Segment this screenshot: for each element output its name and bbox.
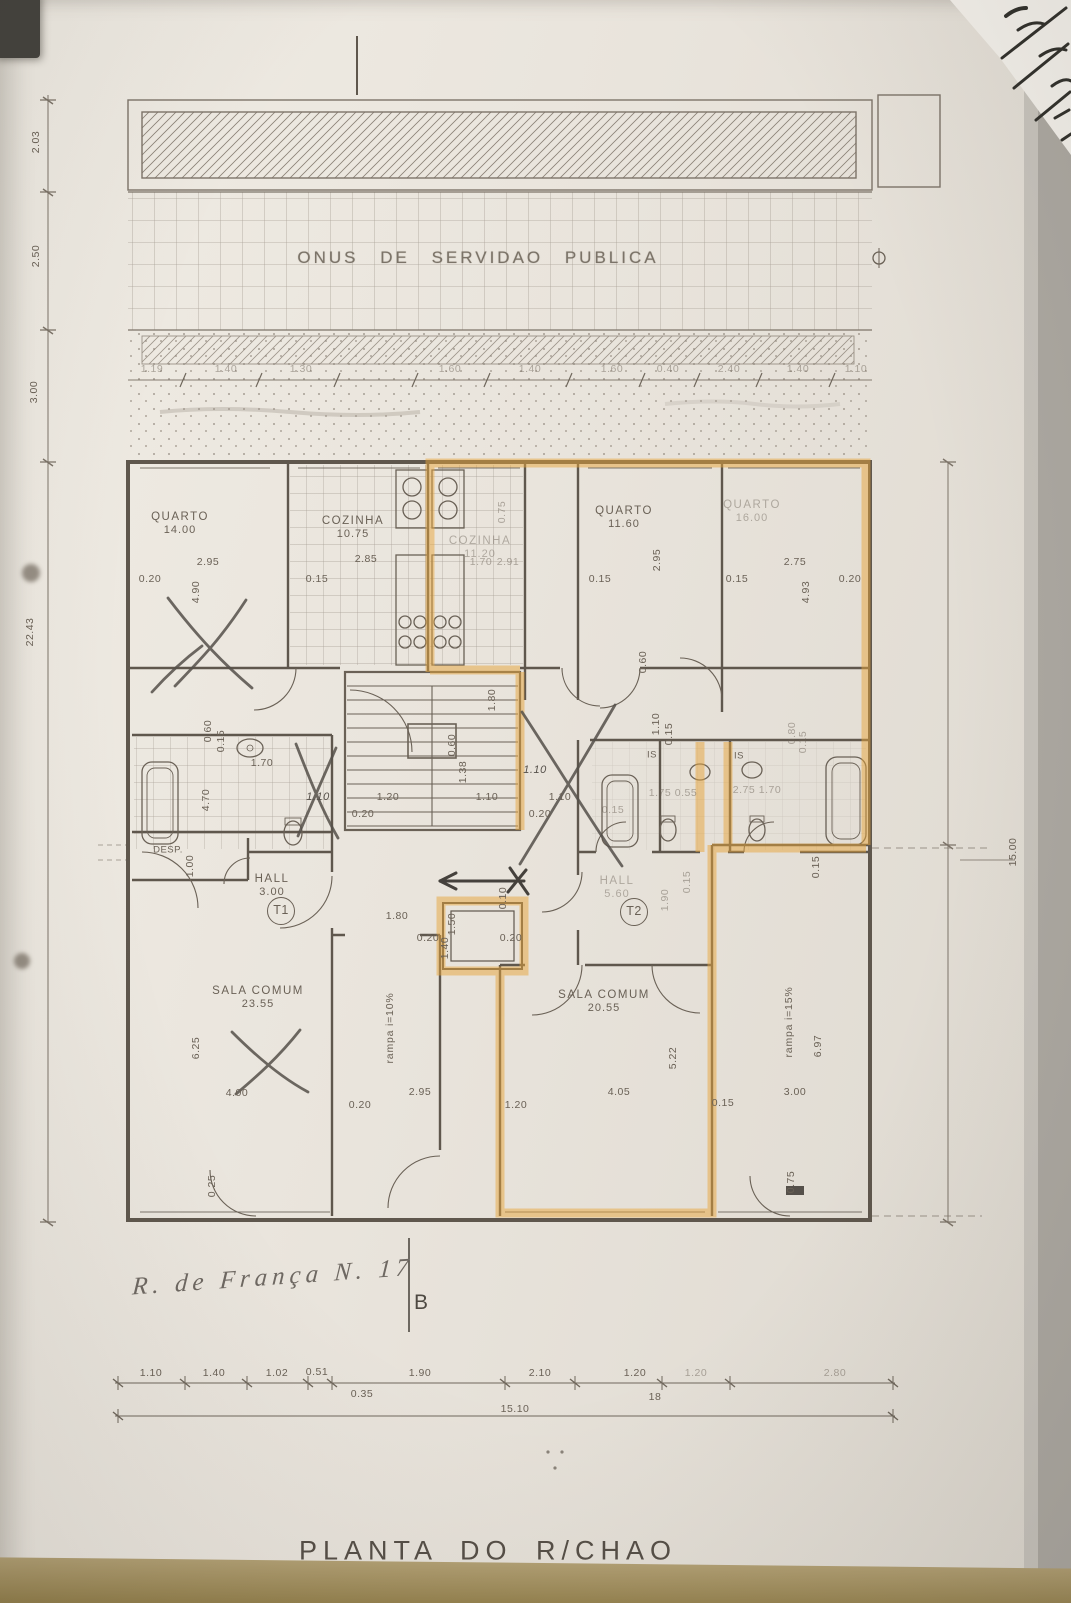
dimension-label: 0.15 [663, 723, 675, 745]
room-name: COZINHA [322, 515, 384, 528]
section-letter-b: B [414, 1291, 428, 1315]
room-name: QUARTO [723, 499, 781, 512]
room-label: HALL3.00 [255, 873, 290, 899]
dimension-label: 15.00 [1007, 838, 1019, 867]
dimension-label: 1.10 [476, 791, 498, 803]
dimension-label: 0.20 [139, 573, 161, 585]
dimension-label: 1.20 [505, 1099, 527, 1111]
dimension-label: 1.40 [787, 363, 809, 375]
dimension-label: 1.75 [649, 787, 671, 799]
dimension-label: 0.15 [797, 731, 809, 753]
dimension-label: 0.15 [602, 804, 624, 816]
room-label: COZINHA10.75 [322, 515, 384, 541]
dimension-label: 2.75 [733, 784, 755, 796]
room-name: IS [647, 751, 657, 762]
dimension-label: 2.95 [197, 556, 219, 568]
dimension-label: 0.75 [496, 501, 508, 523]
room-name: QUARTO [151, 511, 209, 524]
dimension-label: 0.20 [500, 932, 522, 944]
ramp-label: rampa i=10% [384, 993, 396, 1064]
room-name: DESP. [153, 846, 183, 857]
dimension-label: 0.60 [202, 720, 214, 742]
dimension-label: 1.80 [486, 689, 498, 711]
room-label: SALA COMUM20.55 [558, 989, 650, 1015]
paper-spot [22, 564, 40, 582]
dimension-label: 0.10 [497, 887, 509, 909]
dimension-label: 0.75 [785, 1171, 797, 1193]
unit-tag-t2: T2 [620, 898, 648, 926]
dimension-label: 0.40 [657, 363, 679, 375]
dimension-label: 0.15 [215, 730, 227, 752]
dimension-label: 4.00 [226, 1087, 248, 1099]
dimension-label: 2.85 [355, 553, 377, 565]
dimension-label: 0.55 [675, 787, 697, 799]
dimension-label: 6.97 [812, 1035, 824, 1057]
dimension-label: 0.15 [589, 573, 611, 585]
dimension-label: 18 [649, 1391, 662, 1403]
dimension-label: 2.75 [784, 556, 806, 568]
dimension-label: 0.15 [810, 856, 822, 878]
dimension-label: 3.00 [784, 1086, 806, 1098]
room-name: HALL [600, 875, 635, 888]
room-area: 11.60 [595, 518, 653, 531]
servitude-band-title: ONUS DE SERVIDAO PUBLICA [297, 248, 658, 268]
dimension-label: 1.40 [215, 363, 237, 375]
room-label: SALA COMUM23.55 [212, 985, 304, 1011]
photo-dark-corner [0, 0, 40, 58]
dimension-label: 2.50 [30, 245, 42, 267]
dimension-label: 1.10 [650, 713, 662, 735]
dimension-label: 0.15 [726, 573, 748, 585]
dimension-label: 1.60 [601, 363, 623, 375]
room-name: COZINHA [449, 535, 511, 548]
room-name: SALA COMUM [558, 989, 650, 1002]
dimension-label: 1.40 [439, 937, 451, 959]
dimension-label: 4.90 [190, 581, 202, 603]
dimension-label: 2.03 [30, 131, 42, 153]
room-label: QUARTO14.00 [151, 511, 209, 537]
dimension-label: 4.05 [608, 1086, 630, 1098]
room-label: HALL5.60 [600, 875, 635, 901]
dimension-label: 0.60 [637, 651, 649, 673]
dimension-label: 15.10 [501, 1403, 530, 1415]
dimension-label: 0.25 [206, 1175, 218, 1197]
dimension-label: 1.10 [845, 363, 867, 375]
room-name: QUARTO [595, 505, 653, 518]
room-area: 23.55 [212, 998, 304, 1011]
dimension-label: 0.60 [446, 734, 458, 756]
dimension-label: 2.95 [409, 1086, 431, 1098]
dimension-label: 1.00 [184, 855, 196, 877]
dimension-label: 1.10 [306, 791, 329, 803]
room-name: SALA COMUM [212, 985, 304, 998]
ramp-label: rampa i=15% [783, 987, 795, 1058]
dimension-label: 0.20 [349, 1099, 371, 1111]
dimension-label: 1.02 [266, 1367, 288, 1379]
room-label: IS [647, 751, 657, 762]
dimension-label: 0.20 [417, 932, 439, 944]
dimension-label: 4.70 [200, 789, 212, 811]
dimension-label: 1.10 [523, 764, 546, 776]
dimension-label: 4.93 [800, 581, 812, 603]
dimension-label: 2.95 [651, 549, 663, 571]
dimension-label: 1.20 [624, 1367, 646, 1379]
room-label: QUARTO16.00 [723, 499, 781, 525]
dimension-label: 1.60 [439, 363, 461, 375]
dimension-label: 0.15 [306, 573, 328, 585]
dimension-label: 1.38 [457, 761, 469, 783]
dimension-label: 1.90 [409, 1367, 431, 1379]
dimension-label: 0.15 [681, 871, 693, 893]
room-name: HALL [255, 873, 290, 886]
dimension-label: 3.00 [28, 381, 40, 403]
unit-tag-t1: T1 [267, 897, 295, 925]
dimension-label: 1.70 [251, 757, 273, 769]
dimension-label: 0.20 [529, 808, 551, 820]
paper-spot [14, 953, 30, 969]
room-label: DESP. [153, 846, 183, 857]
room-name: IS [734, 752, 744, 763]
photographed-floor-plan: ONUS DE SERVIDAO PUBLICA R. de França N.… [0, 0, 1071, 1603]
dimension-label: 1.50 [446, 913, 458, 935]
dimension-label: 0.51 [306, 1366, 328, 1378]
dimension-label: 1.40 [519, 363, 541, 375]
dimension-label: 0.20 [352, 808, 374, 820]
dimension-label: 1.19 [141, 363, 163, 375]
dimension-label: 2.10 [529, 1367, 551, 1379]
dimension-label: 1.70 [759, 784, 781, 796]
dimension-label: 1.10 [140, 1367, 162, 1379]
dimension-label: 0.15 [712, 1097, 734, 1109]
room-label: QUARTO11.60 [595, 505, 653, 531]
dimension-label: 1.20 [377, 791, 399, 803]
dimension-label: 5.22 [667, 1047, 679, 1069]
room-area: 11.20 [449, 548, 511, 561]
dimension-label: 6.25 [190, 1037, 202, 1059]
handwritten-address: R. de França N. 17 [131, 1250, 462, 1301]
room-area: 20.55 [558, 1002, 650, 1015]
plan-labels-layer: ONUS DE SERVIDAO PUBLICA R. de França N.… [0, 0, 1071, 1603]
dimension-label: 2.80 [824, 1367, 846, 1379]
dimension-label: 1.20 [685, 1367, 707, 1379]
room-label: IS [734, 752, 744, 763]
room-area: 14.00 [151, 524, 209, 537]
dimension-label: 1.40 [203, 1367, 225, 1379]
dimension-label: 2.40 [718, 363, 740, 375]
dimension-label: 1.80 [386, 910, 408, 922]
dimension-label: 1.90 [659, 889, 671, 911]
dimension-label: 22.43 [24, 618, 36, 647]
dimension-label: 0.35 [351, 1388, 373, 1400]
dimension-label: 0.20 [839, 573, 861, 585]
dimension-label: 1.30 [290, 363, 312, 375]
room-area: 10.75 [322, 528, 384, 541]
room-area: 16.00 [723, 512, 781, 525]
room-label: COZINHA11.20 [449, 535, 511, 561]
dimension-label: 1.10 [549, 791, 571, 803]
